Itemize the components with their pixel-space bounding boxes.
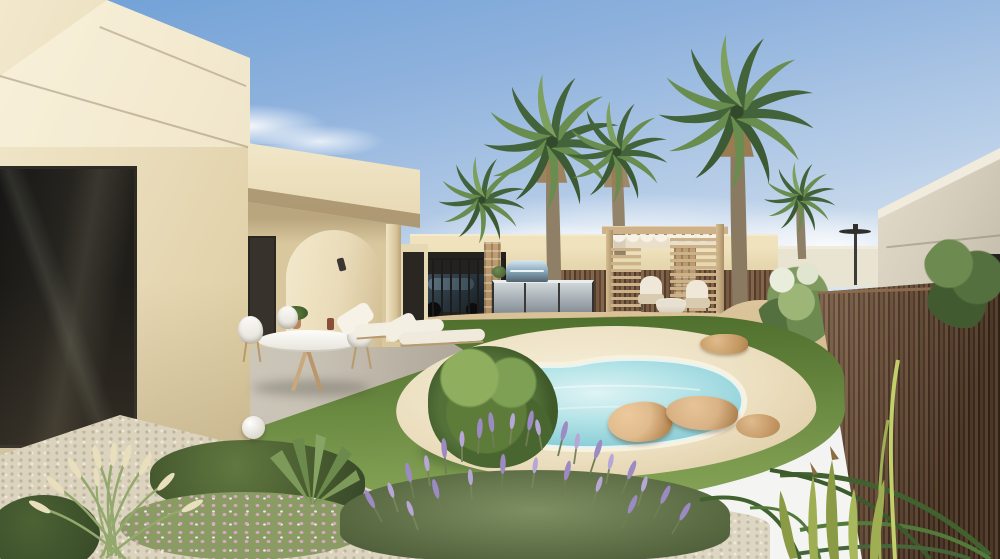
foreground-fronds (690, 350, 1000, 559)
palm-frond-arcs (700, 360, 990, 559)
table-cup (327, 318, 334, 330)
aloe-leaves (776, 446, 889, 559)
ornamental-grass (8, 390, 218, 559)
barbecue-grill (506, 260, 548, 282)
street-lamp-pole (854, 233, 857, 285)
wall-sconce (336, 257, 346, 271)
armchair-leg (641, 304, 643, 310)
pergola-top-beam (602, 226, 728, 234)
street-lamp-cap (853, 224, 858, 230)
pergola-slat-panel-left (611, 248, 641, 320)
kitchen-plant (492, 266, 506, 278)
lavender-bush (322, 402, 742, 559)
armchair-seat (684, 298, 710, 308)
fence-top-greenery (920, 236, 1000, 328)
fire-bowl-rim (656, 298, 686, 306)
table-shadow (252, 380, 370, 396)
pergola-armchair (684, 280, 710, 312)
barbecue-handle (510, 270, 544, 272)
villa-garden-render: Sunny 3D render of a modern cream-colour… (0, 0, 1000, 559)
dining-chair (277, 306, 298, 329)
